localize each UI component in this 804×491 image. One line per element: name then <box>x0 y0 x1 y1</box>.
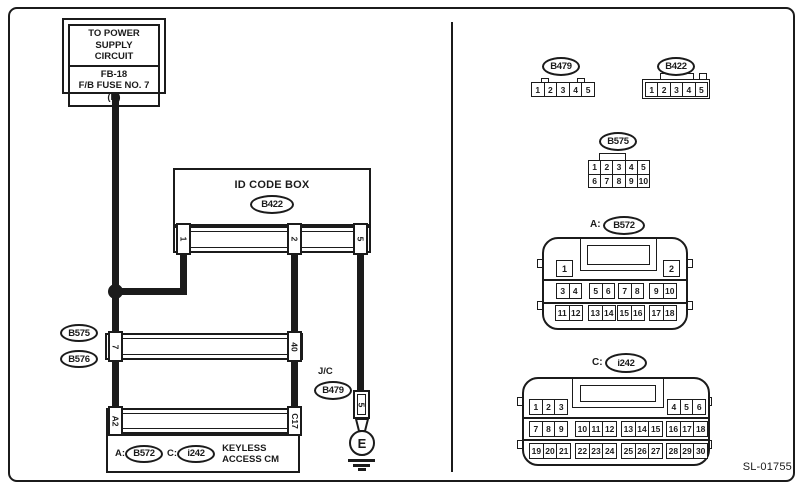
view-b422-oval: B422 <box>657 57 695 76</box>
pin-b575-7-label: 7 <box>110 344 120 349</box>
pin-cell: 7 <box>600 175 612 188</box>
pin-cell: 2 <box>544 83 557 96</box>
pin-cell: 2 <box>600 161 612 174</box>
view-i242-pin-group: 22 23 24 <box>575 443 617 459</box>
pin-keyless-a2-label: A2 <box>111 416 121 427</box>
pin-cell: 8 <box>612 175 624 188</box>
pin-cell: 6 <box>602 284 615 298</box>
pin-cell: 30 <box>693 444 707 458</box>
pin-cell: 17 <box>680 422 694 436</box>
pin-cell: 3 <box>556 83 569 96</box>
row-separator <box>543 279 687 281</box>
pin-cell: 3 <box>554 400 567 414</box>
view-i242-pin-group: 1 2 3 <box>529 399 568 415</box>
pin-cell: 4 <box>668 400 680 414</box>
pin-b575-7: 7 <box>108 331 123 362</box>
pin-cell: 4 <box>569 284 582 298</box>
pin-cell: 5 <box>695 83 707 96</box>
pin-cell: 17 <box>650 306 663 320</box>
pin-cell: 29 <box>680 444 694 458</box>
view-i242-pin-group: 28 29 30 <box>666 443 708 459</box>
pin-cell: 20 <box>543 444 557 458</box>
view-i242-pin-group: 25 26 27 <box>621 443 663 459</box>
wire-pin5-to-ground <box>357 253 364 392</box>
view-b572-pin-1: 1 <box>556 260 573 277</box>
pin-cell: 13 <box>589 306 602 320</box>
view-i242-pin-group: 19 20 21 <box>529 443 571 459</box>
fuse-line2: F/B FUSE NO. 7 <box>70 80 158 92</box>
pin-cell: 19 <box>530 444 543 458</box>
fuse-line1: FB-18 <box>70 69 158 81</box>
pin-cell: 5 <box>680 400 693 414</box>
wire-junction-dot <box>108 284 123 299</box>
view-i242-pin-group: 4 5 6 <box>667 399 706 415</box>
pin-cell: 8 <box>631 284 644 298</box>
pin-cell: 1 <box>646 83 657 96</box>
pin-b479-5: 5 <box>353 390 370 419</box>
power-supply-box: TO POWER SUPPLY CIRCUIT FB-18 F/B FUSE N… <box>62 18 166 94</box>
pin-cell: 23 <box>589 444 603 458</box>
pin-cell: 16 <box>631 306 645 320</box>
keyless-prefix-c: C: <box>167 448 177 459</box>
pin-b422-2-label: 2 <box>289 237 299 242</box>
view-b572-oval: B572 <box>603 216 645 235</box>
inline-connector-strip <box>105 333 303 360</box>
pin-cell: 12 <box>569 306 583 320</box>
power-supply-line1: TO POWER SUPPLY <box>70 28 158 51</box>
connector-oval-i242: i242 <box>177 445 215 463</box>
pin-cell: 3 <box>670 83 682 96</box>
power-supply-circuit-label: TO POWER SUPPLY CIRCUIT <box>70 26 158 67</box>
pin-cell: 9 <box>650 284 663 298</box>
pin-cell: 5 <box>581 83 594 96</box>
pin-cell: 1 <box>532 83 544 96</box>
pin-cell: 14 <box>602 306 616 320</box>
row-separator <box>523 417 709 419</box>
pin-cell: 16 <box>667 422 680 436</box>
pin-keyless-a2: A2 <box>108 406 123 436</box>
pin-cell: 6 <box>692 400 705 414</box>
pin-cell: 10 <box>637 175 649 188</box>
pin-cell: 4 <box>569 83 582 96</box>
pin-cell: 2 <box>542 400 555 414</box>
pin-cell: 3 <box>557 284 569 298</box>
pin-b422-5: 5 <box>353 223 368 255</box>
power-supply-line2: CIRCUIT <box>70 51 158 63</box>
keyless-name-line2: ACCESS CM <box>222 454 279 465</box>
pin-b422-1: 1 <box>176 223 191 255</box>
pin-cell: 7 <box>619 284 631 298</box>
ground-line-3 <box>358 468 366 471</box>
keyless-access-cm-box: A: B572 C: i242 KEYLESS ACCESS CM <box>106 434 300 473</box>
connector-oval-b422: B422 <box>250 195 294 214</box>
pin-cell: 25 <box>622 444 635 458</box>
ground-line-1 <box>348 459 375 462</box>
pin-cell: 15 <box>618 306 631 320</box>
pin-cell: 13 <box>622 422 635 436</box>
pin-cell: 1 <box>589 161 600 174</box>
pin-cell: 3 <box>612 161 624 174</box>
pin-cell: 7 <box>530 422 542 436</box>
pin-cell: 22 <box>576 444 589 458</box>
keyless-connector-strip <box>106 408 300 434</box>
pin-cell: 21 <box>556 444 570 458</box>
row-separator <box>523 439 709 441</box>
keyless-name-line1: KEYLESS <box>222 443 279 454</box>
view-b572-pin-group: 13 14 <box>588 305 616 321</box>
view-i242-prefix: C: <box>592 357 603 368</box>
pin-cell: 10 <box>663 284 677 298</box>
view-b479-oval: B479 <box>542 57 580 76</box>
ground-symbol: E <box>349 430 375 456</box>
pin-b422-2: 2 <box>287 223 302 255</box>
connector-oval-b479: B479 <box>314 381 352 400</box>
pin-b576-40-label: 40 <box>290 342 300 351</box>
view-b575-grid: 1 2 3 4 5 6 7 8 9 10 <box>588 160 650 188</box>
wiring-diagram-page: TO POWER SUPPLY CIRCUIT FB-18 F/B FUSE N… <box>0 0 804 491</box>
pin-cell: 14 <box>635 422 649 436</box>
pin-cell: 18 <box>663 306 677 320</box>
pin-cell: 2 <box>657 83 669 96</box>
view-b572-pin-group: 5 6 <box>589 283 615 299</box>
pin-cell: 9 <box>554 422 567 436</box>
view-b572-pin-group: 15 16 <box>617 305 645 321</box>
id-code-box-title: ID CODE BOX <box>175 179 369 191</box>
pin-b576-40: 40 <box>287 331 302 362</box>
view-i242-pin-group: 7 8 9 <box>529 421 568 437</box>
view-i242-pin-group: 13 14 15 <box>621 421 663 437</box>
pin-b422-1-label: 1 <box>178 237 188 242</box>
pin-cell: 24 <box>602 444 616 458</box>
pin-cell: 28 <box>667 444 680 458</box>
view-b572-pin-group: 11 12 <box>555 305 583 321</box>
panel-divider-line <box>451 22 453 472</box>
view-b572-pin-group: 9 10 <box>649 283 677 299</box>
pin-cell: 4 <box>682 83 694 96</box>
view-i242-pin-group: 10 11 12 <box>575 421 617 437</box>
view-b572-pin-2: 2 <box>663 260 680 277</box>
pin-cell: 11 <box>556 306 569 320</box>
junction-type-label: J/C <box>318 366 333 377</box>
pin-cell: 8 <box>542 422 555 436</box>
row-separator <box>543 302 687 304</box>
pin-cell: 5 <box>590 284 602 298</box>
pin-cell: 5 <box>637 161 649 174</box>
pin-cell: 18 <box>693 422 707 436</box>
id-code-box-connector-strip <box>173 226 371 253</box>
pin-b479-5-label: 5 <box>356 402 366 407</box>
view-b572-prefix: A: <box>590 219 601 230</box>
pin-cell: 6 <box>589 175 600 188</box>
pin-cell: 10 <box>576 422 589 436</box>
view-b572-pin-group: 17 18 <box>649 305 677 321</box>
view-b572-pin-group: 3 4 <box>556 283 582 299</box>
pin-cell: 11 <box>589 422 603 436</box>
ground-line-2 <box>353 464 370 467</box>
view-b479-pin-row: 1 2 3 4 5 <box>531 82 595 97</box>
view-i242-pin-group: 16 17 18 <box>666 421 708 437</box>
connector-oval-b576: B576 <box>60 350 98 368</box>
view-b575-oval: B575 <box>599 132 637 151</box>
pin-cell: 15 <box>648 422 662 436</box>
pin-keyless-c17-label: C17 <box>290 413 300 429</box>
pin-cell: 12 <box>602 422 616 436</box>
figure-code: SL-01755 <box>727 461 792 473</box>
pin-cell: 27 <box>648 444 662 458</box>
pin-cell: 26 <box>635 444 649 458</box>
pin-cell: 4 <box>625 161 637 174</box>
keyless-name: KEYLESS ACCESS CM <box>222 443 279 465</box>
wire-branch-horizontal <box>112 288 187 295</box>
wire-branch-to-pin1 <box>180 253 187 295</box>
view-b572-pin-group: 7 8 <box>618 283 644 299</box>
pin-b422-5-label: 5 <box>355 237 365 242</box>
view-b572-lock-inner <box>587 245 650 265</box>
pin-cell: 9 <box>625 175 637 188</box>
connector-oval-b572: B572 <box>125 445 163 463</box>
pin-keyless-c17: C17 <box>287 406 302 436</box>
pin-cell: 1 <box>530 400 542 414</box>
view-b422-pin-row: 1 2 3 4 5 <box>645 82 708 97</box>
view-i242-lock-inner <box>580 385 656 402</box>
keyless-prefix-a: A: <box>115 448 125 459</box>
view-i242-oval: i242 <box>605 353 647 373</box>
connector-oval-b575: B575 <box>60 324 98 342</box>
